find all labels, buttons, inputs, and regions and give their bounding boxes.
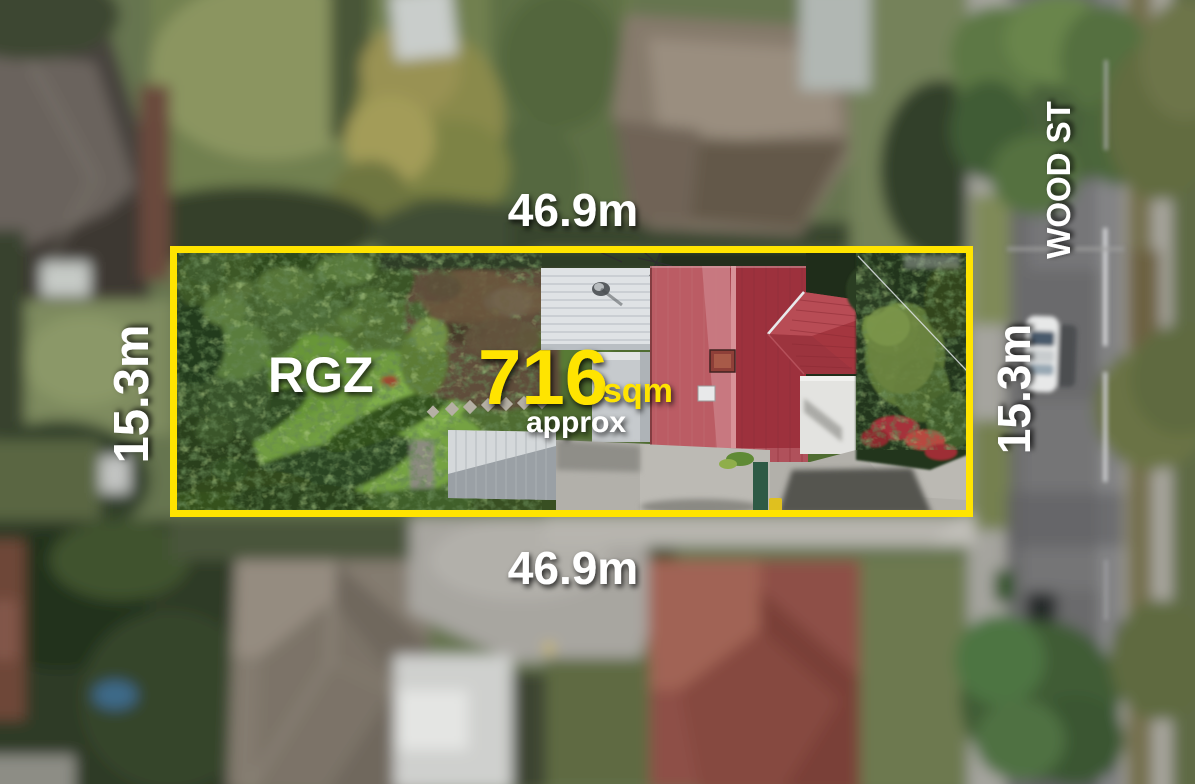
svg-text:15.3m: 15.3m xyxy=(105,325,159,464)
svg-text:RGZ: RGZ xyxy=(268,347,374,403)
svg-text:46.9m: 46.9m xyxy=(508,184,638,236)
svg-text:approx: approx xyxy=(526,406,626,439)
svg-text:WOOD ST: WOOD ST xyxy=(1040,101,1077,259)
svg-text:46.9m: 46.9m xyxy=(508,542,638,594)
svg-text:15.3m: 15.3m xyxy=(988,324,1040,454)
svg-text:sqm: sqm xyxy=(603,372,673,410)
